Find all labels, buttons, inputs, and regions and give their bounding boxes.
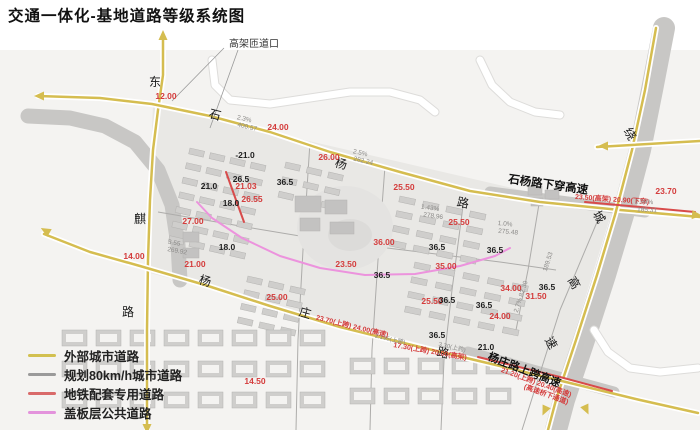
legend-item-label: 外部城市道路 — [64, 346, 139, 365]
building-courtyard — [202, 334, 219, 342]
building-block — [183, 232, 199, 242]
building-courtyard — [168, 334, 185, 342]
legend-item-label: 地铁配套专用道路 — [64, 384, 164, 403]
legend-item-1: 规划80km/h城市道路 — [28, 365, 182, 384]
legend-line-swatch — [28, 354, 56, 357]
legend-item-3: 盖板层公共道路 — [28, 403, 182, 422]
building-courtyard — [66, 334, 83, 342]
building-courtyard — [270, 365, 287, 373]
legend: 外部城市道路规划80km/h城市道路地铁配套专用道路盖板层公共道路 — [28, 346, 182, 422]
legend-item-0: 外部城市道路 — [28, 346, 182, 365]
map-canvas: 交通一体化-基地道路等级系统图 高架匝道口东麒路石杨路绕城高速杨庄路石杨路下穿高… — [0, 0, 700, 430]
building-courtyard — [236, 334, 253, 342]
legend-item-label: 规划80km/h城市道路 — [64, 365, 182, 384]
building-courtyard — [304, 334, 321, 342]
legend-line-swatch — [28, 373, 56, 376]
building-block — [183, 248, 199, 258]
building-courtyard — [422, 362, 439, 370]
building-courtyard — [354, 362, 371, 370]
road-direction-arrow — [159, 30, 168, 40]
building-block — [528, 186, 542, 195]
building-courtyard — [354, 392, 371, 400]
building-courtyard — [202, 365, 219, 373]
building-courtyard — [304, 365, 321, 373]
building-courtyard — [422, 392, 439, 400]
building-block — [300, 218, 320, 231]
building-courtyard — [236, 365, 253, 373]
legend-item-2: 地铁配套专用道路 — [28, 384, 182, 403]
legend-item-label: 盖板层公共道路 — [64, 403, 152, 422]
building-courtyard — [388, 362, 405, 370]
building-courtyard — [456, 362, 473, 370]
building-courtyard — [388, 392, 405, 400]
building-block — [545, 190, 559, 199]
building-block — [295, 196, 321, 212]
building-courtyard — [270, 396, 287, 404]
page-title: 交通一体化-基地道路等级系统图 — [8, 4, 245, 26]
building-courtyard — [304, 396, 321, 404]
building-courtyard — [100, 334, 117, 342]
building-courtyard — [456, 392, 473, 400]
building-block — [330, 222, 354, 234]
building-courtyard — [490, 392, 507, 400]
legend-line-swatch — [28, 411, 56, 414]
building-courtyard — [202, 396, 219, 404]
legend-line-swatch — [28, 392, 56, 395]
building-block — [325, 200, 347, 214]
building-courtyard — [270, 334, 287, 342]
building-courtyard — [236, 396, 253, 404]
